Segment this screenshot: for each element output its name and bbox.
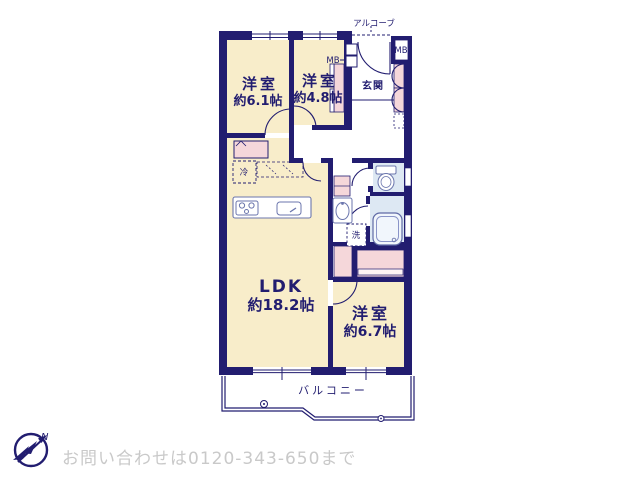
bathtub [373, 213, 402, 245]
washer-label: 洗 [352, 230, 361, 241]
window-top-1 [252, 31, 288, 40]
compass-icon: N [13, 432, 49, 466]
bedroom3-closet-small [334, 246, 352, 277]
floor-plan-page: N 洋室 約6.1帖 洋室 約4.8帖 LDK 約18.2帖 洋室 約6.7帖 … [0, 0, 640, 480]
bedroom3-label: 洋室 [352, 304, 390, 323]
meter-box-small-2 [346, 56, 357, 67]
balcony-railing [222, 375, 414, 422]
washbasin-faucet [341, 202, 344, 205]
mb-right-label: MB [394, 46, 407, 56]
kitchen-sink [277, 202, 301, 215]
balcony-label: バルコニー [298, 384, 368, 397]
entrance-label: 玄関 [362, 79, 384, 92]
meter-box-small-1 [346, 44, 357, 55]
ldk-floor [227, 138, 294, 367]
washbasin-bowl [336, 203, 349, 220]
toilet-window [405, 168, 411, 186]
window-bottom-1 [253, 367, 311, 375]
bedroom3-size: 約6.7帖 [344, 323, 397, 340]
bedroom1-size: 約6.1帖 [233, 93, 282, 109]
hallway-floor [294, 125, 352, 163]
fridge-label: 冷 [240, 167, 249, 178]
window-top-2 [303, 31, 337, 40]
window-bottom-2 [346, 367, 386, 375]
bedroom2-label: 洋室 [302, 72, 338, 90]
ldk-size: 約18.2帖 [247, 296, 314, 314]
ldk-floor2 [294, 163, 328, 367]
toilet-bowl [378, 174, 394, 191]
closet-door-band [358, 269, 403, 275]
alcove-label: アルコーブ [353, 18, 395, 29]
mb-left-label: MB [326, 56, 339, 66]
north-label: N [41, 432, 49, 443]
ldk-label: LDK [259, 277, 303, 297]
bedroom1-label: 洋室 [242, 75, 278, 93]
stove [236, 201, 258, 215]
bath-window [405, 215, 411, 237]
ldk-storage [234, 141, 268, 158]
toilet-tank [376, 166, 396, 174]
floor-plan-svg: N 洋室 約6.1帖 洋室 約4.8帖 LDK 約18.2帖 洋室 約6.7帖 … [0, 0, 640, 480]
bedroom2-size: 約4.8帖 [293, 90, 342, 106]
contact-text: お問い合わせは0120-343-650まで [62, 449, 356, 469]
balcony-rail-outer [222, 376, 414, 420]
